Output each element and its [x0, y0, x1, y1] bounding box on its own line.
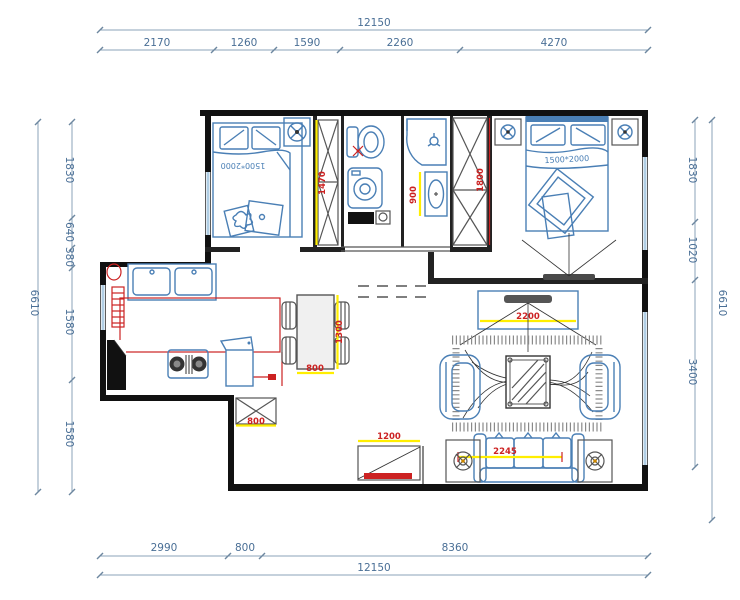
master-bedroom: 1500*2000 — [495, 116, 638, 280]
dim-left-seg-1: 1830 — [63, 157, 75, 184]
dim-top-seg-5: 4270 — [541, 37, 568, 49]
dimension-chain-top: 12150 2170 1260 1590 2260 4270 — [97, 17, 651, 53]
vanity-basin: 900 — [409, 172, 447, 216]
wardrobe-master-dim: 1800 — [476, 168, 486, 192]
dim-right-seg-2: 1020 — [686, 237, 698, 264]
dim-left-seg-2: 640 — [63, 222, 75, 242]
duct-shaft: 800 — [236, 398, 276, 427]
window-kitchen-left — [100, 285, 106, 330]
washing-machine — [348, 168, 382, 208]
armchair-left — [440, 355, 480, 419]
toilet — [347, 126, 384, 158]
dim-top-seg-4: 2260 — [387, 37, 414, 49]
window-bedroom-left — [205, 172, 211, 235]
dim-left-seg-5: 1580 — [63, 421, 75, 448]
dimension-chain-right: 1830 1020 3400 6610 — [686, 117, 728, 523]
small-bedroom: 1500*2000 — [213, 118, 310, 237]
floor-plan-canvas: 12150 2170 1260 1590 2260 4270 2990 800 … — [0, 0, 740, 600]
floor-plan-drawing: 12150 2170 1260 1590 2260 4270 2990 800 … — [0, 0, 740, 600]
dimension-chain-left: 1830 640 380 1580 1580 6610 — [28, 119, 75, 495]
radiator-symbol — [112, 287, 124, 327]
nightstand-left — [495, 119, 521, 145]
master-bed: 1500*2000 — [526, 116, 608, 239]
fridge — [221, 337, 253, 386]
window-master-right — [642, 157, 648, 250]
dim-top-seg-1: 2170 — [144, 37, 171, 49]
small-bed-size-label: 1500*2000 — [221, 161, 266, 170]
dim-left-total: 6610 — [28, 290, 40, 317]
entry-door-dim: 1200 — [377, 432, 401, 442]
side-table-left — [446, 440, 480, 482]
duct-dim: 800 — [247, 417, 265, 427]
dining-length-dim: 1300 — [335, 320, 345, 344]
dim-bottom-seg-1: 2990 — [151, 542, 178, 554]
dim-left-seg-3: 380 — [63, 247, 75, 267]
vanity-dim: 900 — [409, 186, 419, 204]
dim-right-seg-1: 1830 — [686, 157, 698, 184]
gas-stove — [168, 350, 208, 378]
dim-bottom-seg-3: 8360 — [442, 542, 469, 554]
dim-top-seg-2: 1260 — [231, 37, 258, 49]
living-room: 2200 — [440, 291, 620, 482]
dim-bottom-seg-2: 800 — [235, 542, 255, 554]
passage-dashed-lines — [358, 286, 428, 297]
bathroom — [347, 126, 390, 224]
nightstand-right — [612, 119, 638, 145]
wardrobe-small-dim: 1470 — [318, 171, 328, 195]
dim-top-seg-3: 1590 — [294, 37, 321, 49]
master-tv — [522, 233, 616, 280]
wardrobe-master: 1800 — [453, 118, 490, 245]
entry-door: 1200 — [358, 432, 423, 484]
dim-left-seg-4: 1580 — [63, 309, 75, 336]
dining-area: 800 1300 — [282, 295, 349, 374]
dim-bottom-total: 12150 — [357, 562, 390, 574]
dim-right-seg-3: 3400 — [686, 359, 698, 386]
coffee-table — [506, 356, 550, 408]
kitchen-sink — [128, 264, 216, 300]
dim-top-total: 12150 — [357, 17, 390, 29]
dim-right-total: 6610 — [716, 290, 728, 317]
column-shaft — [107, 340, 126, 390]
dining-width-dim: 800 — [306, 364, 324, 374]
shower-room: 900 — [407, 119, 447, 216]
shower-head-icon — [428, 133, 440, 146]
dimension-chain-bottom: 2990 800 8360 12150 — [97, 542, 651, 578]
entry-door-leaf — [364, 473, 412, 479]
wardrobe-small: 1470 — [317, 120, 339, 245]
side-table-right — [578, 440, 612, 482]
kitchen-counter-outline — [120, 298, 282, 386]
sofa-dim: 2245 — [493, 447, 517, 457]
window-living-right — [642, 312, 648, 465]
kitchen — [107, 264, 282, 390]
bathroom-step — [348, 211, 390, 224]
